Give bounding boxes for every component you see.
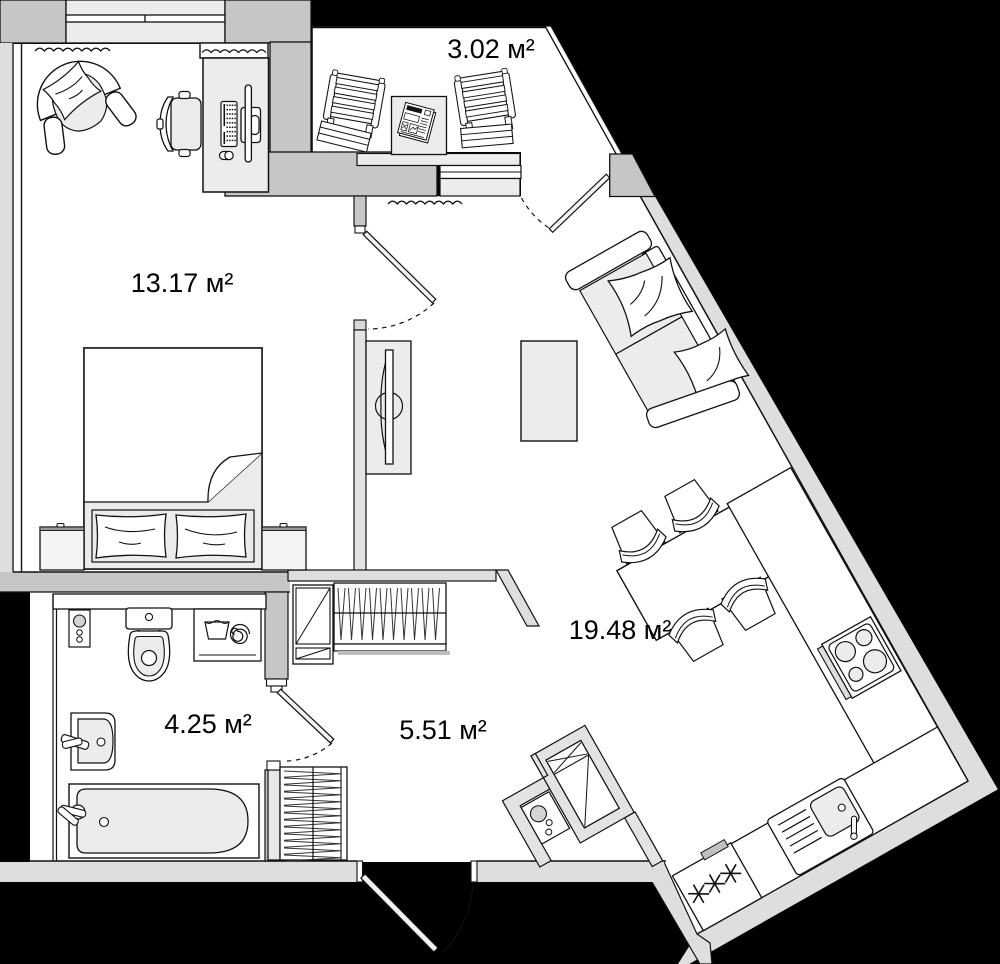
svg-text:19.48 м²: 19.48 м² xyxy=(569,615,672,645)
svg-text:3.02 м²: 3.02 м² xyxy=(447,34,535,64)
svg-text:5.51 м²: 5.51 м² xyxy=(399,715,487,745)
svg-text:4.25 м²: 4.25 м² xyxy=(164,709,252,739)
svg-text:13.17 м²: 13.17 м² xyxy=(131,268,234,298)
